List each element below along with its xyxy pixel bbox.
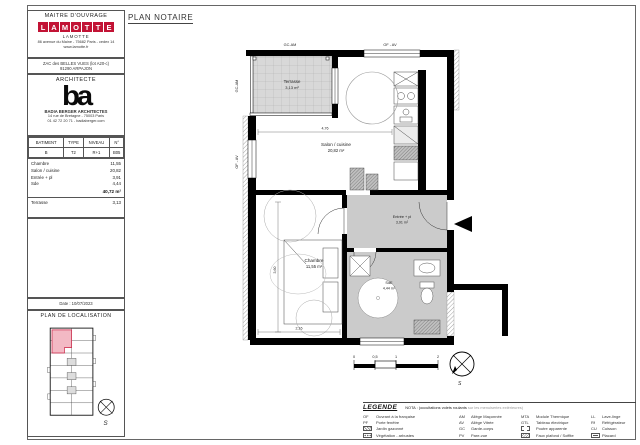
nota-text: NOTA : (occultations volets roulants [405, 405, 467, 410]
legend-title: LEGENDE [363, 404, 397, 411]
logo-letter: A [49, 22, 59, 32]
scale-tick-05: 0,5 [372, 355, 377, 359]
scale-tick-2: 2 [437, 355, 439, 359]
legend-column-1: OFOuvrant à la française PFPorte fenêtre… [363, 413, 459, 439]
company-address: 86 avenue du Maine - 75682 Paris - cedex… [28, 40, 124, 45]
area-row: Chambre 11,55 [28, 161, 124, 168]
area-value: 11,55 [110, 161, 121, 168]
window-tag-left-top: GC-AM [235, 80, 239, 93]
window-tag-left-mid: OF - AV [235, 155, 239, 169]
label-terrasse: Terrasse [284, 79, 301, 84]
label-chambre: Chambre [305, 258, 324, 263]
localisation-header: PLAN DE LOCALISATION [28, 311, 124, 319]
cartouche-unit-table: BATIMENT TYPE NIVEAU N° B T2 R+1 B05 [27, 136, 125, 158]
area-label: Chambre [31, 161, 49, 168]
legend-column-4: LLLave-linge RfRéfrigérateur CUCuisson P… [591, 413, 636, 439]
label-terrasse-area: 3,13 m² [285, 85, 299, 90]
area-row: Entrée + pl 3,91 [28, 175, 124, 182]
area-value: 4,44 [112, 181, 121, 188]
unit-value-niveau: R+1 [83, 148, 110, 158]
highlighted-unit [52, 330, 72, 353]
legend-item: PVPare-vue [459, 432, 521, 438]
area-row: Sde 4,44 [28, 181, 124, 188]
cartouche-localisation: PLAN DE LOCALISATION [27, 310, 125, 437]
jardin-gazonne-icon [363, 426, 372, 431]
placard-icon [591, 433, 600, 438]
cartouche-date: Date : 10/07/2023 [27, 298, 125, 310]
area-value: 20,82 [110, 168, 121, 175]
kitchen-fixtures [394, 72, 418, 180]
area-label: Entrée + pl [31, 175, 52, 182]
area-label: Terrasse [31, 200, 48, 207]
logo-letter: T [82, 22, 92, 32]
architecte-contact: 01 42 72 20 71 - badiaberger.com [28, 119, 124, 124]
entrance-arrow-icon [454, 216, 472, 232]
label-salon-area: 20,82 m² [328, 148, 345, 153]
compass-icon: S [450, 352, 474, 387]
label-entree-area: 3,91 m² [396, 221, 409, 225]
label-chambre-area: 11,55 m² [306, 264, 323, 269]
divider [28, 197, 124, 198]
cartouche-architecte: ARCHITECTE ba BADIA BERGER ARCHITECTES 1… [27, 74, 125, 136]
window-tag-top-left: GC-AM [284, 43, 297, 47]
legend-nota: NOTA : (occultations volets roulants sur… [405, 405, 523, 410]
compass-letter: S [104, 420, 109, 427]
cartouche-operation: ZAC des BELLES VUES (lot A20-c) 91290 AR… [27, 58, 125, 74]
window-tag-top-right: OF - AV [383, 43, 397, 47]
area-value: 3,13 [112, 200, 121, 207]
dim-chambre-height: 3,60 [273, 267, 277, 274]
compass-letter: S [458, 381, 462, 387]
floor-plan: 4,76 3,60 2,16 GC-AM OF - AV GC-AM OF - … [226, 34, 516, 396]
logo-letter: O [71, 22, 81, 32]
badia-berger-logo: ba [26, 83, 127, 109]
cartouche-empty-box [27, 218, 125, 298]
localisation-mini-plan: S [28, 321, 124, 433]
label-sde: SdE [385, 281, 393, 285]
legend-grid: OFOuvrant à la française PFPorte fenêtre… [363, 413, 636, 439]
area-row-terrasse: Terrasse 3,13 [28, 200, 124, 207]
unit-value-type: T2 [64, 148, 83, 158]
area-value: 3,91 [112, 175, 121, 182]
scale-tick-0: 0 [353, 355, 355, 359]
logo-letter: T [93, 22, 103, 32]
localisation-compass-icon: S [98, 399, 114, 427]
unit-value-numero: B05 [110, 148, 124, 158]
dim-salon-width: 4,76 [322, 127, 329, 131]
lamotte-logo: L A M O T T E [28, 22, 124, 32]
page-title: PLAN NOTAIRE [128, 13, 193, 24]
cartouche-areas: Chambre 11,55 Salon / cuisine 20,82 Entr… [27, 158, 125, 218]
nota-text-muted: sur les menuiseries extérieures) [467, 405, 523, 410]
legend: LEGENDE NOTA : (occultations volets roul… [363, 402, 636, 440]
label-salon: Salon / cuisine [321, 142, 351, 147]
plan-sheet: PLAN NOTAIRE MAITRE D'OUVRAGE L A M O T … [0, 0, 640, 445]
maitre-ouvrage-header: MAITRE D'OUVRAGE [28, 11, 124, 19]
company-website: www.lamotte.fr [28, 45, 124, 50]
operation-city: 91290 ARPAJON [28, 66, 124, 71]
unit-header-niveau: NIVEAU [83, 138, 110, 148]
legend-column-2: AMAllège Maçonnée AVAllège Vitrée GCGard… [459, 413, 521, 439]
unit-header-type: TYPE [64, 138, 83, 148]
label-entree: Entrée + pl [393, 215, 412, 219]
logo-letter: L [38, 22, 48, 32]
unit-value-batiment: B [29, 148, 64, 158]
label-sde-area: 4,44 m² [383, 287, 396, 291]
area-row: Salon / cuisine 20,82 [28, 168, 124, 175]
cartouche-maitre-ouvrage: MAITRE D'OUVRAGE L A M O T T E LAMOTTE 8… [27, 10, 125, 58]
unit-header-batiment: BATIMENT [29, 138, 64, 148]
area-label: Sde [31, 181, 39, 188]
logo-letter: E [104, 22, 114, 32]
date-label: Date : 10/07/2023 [28, 299, 124, 309]
area-total: 40,72 m² [28, 188, 124, 195]
legend-item: Faux plafond / Soffite [521, 432, 591, 438]
vegetation-arbustes-icon [363, 433, 372, 438]
legend-item: Placard [591, 432, 636, 438]
scale-tick-1: 1 [395, 355, 397, 359]
faux-plafond-icon [521, 433, 530, 438]
legend-column-3: MTAModule Thermique GTLTableau électriqu… [521, 413, 591, 439]
legend-header: LEGENDE NOTA : (occultations volets roul… [363, 404, 636, 411]
scale-bar: 0 0,5 1 2 [353, 355, 439, 370]
logo-letter: M [60, 22, 70, 32]
area-label: Salon / cuisine [31, 168, 60, 175]
legend-item: Végétation - arbustes [363, 432, 459, 438]
unit-header-numero: N° [110, 138, 124, 148]
poutre-apparente-icon [521, 426, 530, 431]
dim-chambre-width: 2,16 [296, 327, 303, 331]
living-room-table [346, 72, 398, 124]
